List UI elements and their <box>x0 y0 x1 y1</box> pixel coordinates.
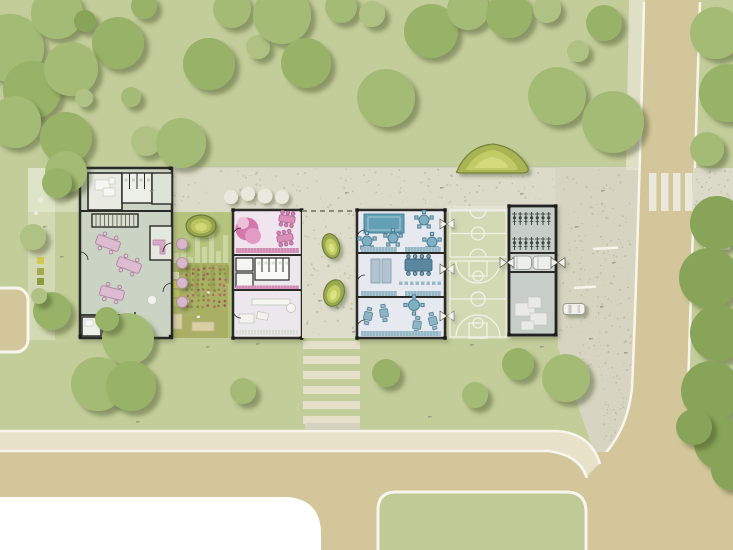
circle-shape <box>245 228 261 244</box>
rect-shape <box>355 208 359 212</box>
rect-shape <box>37 257 44 264</box>
rect-shape <box>305 423 360 430</box>
circle-shape <box>39 198 44 203</box>
tree <box>359 1 385 27</box>
rect-shape <box>507 204 511 208</box>
site-plan-canvas <box>0 0 733 550</box>
parked-van <box>512 256 532 270</box>
rect-shape <box>216 251 221 265</box>
tree <box>586 5 622 41</box>
rect-shape <box>85 320 93 326</box>
tree <box>690 132 724 166</box>
tree <box>183 38 235 90</box>
tree <box>462 382 488 408</box>
rect-shape <box>169 335 173 339</box>
staircase <box>92 214 138 227</box>
rect-shape <box>236 273 253 287</box>
ellipse-shape <box>195 223 207 231</box>
tree <box>281 38 331 88</box>
street-south <box>0 431 645 550</box>
rect-shape <box>79 335 83 339</box>
parked-car <box>563 304 585 315</box>
circle-shape <box>287 304 296 313</box>
plaza-tree <box>241 187 255 201</box>
building-blue <box>355 208 454 339</box>
traffic-island <box>378 492 586 550</box>
rect-shape <box>109 178 115 184</box>
pink-table <box>278 210 296 228</box>
circle-shape <box>258 262 261 265</box>
circle-shape <box>177 258 188 269</box>
tree <box>502 348 534 380</box>
parked-van <box>533 256 553 270</box>
circle-shape <box>139 178 142 181</box>
tree <box>20 224 46 250</box>
tree <box>567 40 589 62</box>
rect-shape <box>223 235 228 265</box>
circle-shape <box>124 178 127 181</box>
circle-shape <box>279 262 282 265</box>
rect-shape <box>443 336 447 340</box>
rect-shape <box>231 336 235 340</box>
site-plan-stage <box>0 0 733 550</box>
circle-shape <box>177 239 188 250</box>
rect-shape <box>103 188 115 196</box>
tree <box>95 307 119 331</box>
tree <box>676 409 712 445</box>
circle-shape <box>286 262 289 265</box>
tree <box>74 10 96 32</box>
ticks-shape <box>237 248 297 253</box>
rect-shape <box>202 265 207 279</box>
building-east <box>500 204 565 336</box>
rect-shape <box>578 305 581 313</box>
rect-shape <box>37 278 44 285</box>
tree <box>92 17 144 69</box>
tree <box>156 118 206 168</box>
rect-shape <box>231 208 235 212</box>
rect-shape <box>37 268 44 275</box>
circle-shape <box>237 217 249 229</box>
circle-shape <box>147 178 150 181</box>
circle-shape <box>272 262 275 265</box>
tree <box>582 91 644 153</box>
rect-shape <box>405 291 441 296</box>
tree <box>106 361 156 411</box>
rect-shape <box>405 247 441 252</box>
circle-shape <box>132 178 135 181</box>
circle-shape <box>148 296 157 305</box>
rect-shape <box>236 248 299 253</box>
plaza-tree <box>224 190 238 204</box>
rect-shape <box>554 333 558 337</box>
rect-shape <box>355 336 359 340</box>
play-mound <box>186 215 216 237</box>
rect-shape <box>563 304 585 315</box>
rect-shape <box>528 297 541 308</box>
tree <box>31 288 47 304</box>
rect-shape <box>554 204 558 208</box>
plaza-tree <box>275 190 289 204</box>
building-pink <box>231 208 303 339</box>
tree <box>121 87 141 107</box>
south-west-block <box>0 497 321 550</box>
tree <box>372 359 400 387</box>
rect-shape <box>252 299 290 305</box>
rect-shape <box>382 259 391 283</box>
tree <box>42 168 72 198</box>
rect-shape <box>239 314 254 323</box>
ticks-shape <box>237 330 297 335</box>
tree <box>230 378 256 404</box>
circle-shape <box>34 211 38 215</box>
rect-shape <box>371 259 380 283</box>
rect-shape <box>202 247 207 265</box>
rect-shape <box>521 321 534 330</box>
tree <box>542 354 590 402</box>
rect-shape <box>361 247 397 252</box>
sports-courts <box>447 206 511 339</box>
tree <box>75 89 93 107</box>
circle-shape <box>177 278 188 289</box>
rect-shape <box>569 305 572 314</box>
tree <box>357 69 415 127</box>
toilets-pink <box>255 258 289 280</box>
rect-shape <box>507 333 511 337</box>
driveway-stub <box>0 288 28 352</box>
rect-shape <box>256 312 268 321</box>
rect-shape <box>152 173 172 204</box>
rect-shape <box>236 258 253 271</box>
rect-shape <box>361 291 397 296</box>
tree <box>528 67 586 125</box>
circle-shape <box>265 262 268 265</box>
building-west <box>79 167 173 339</box>
circle-shape <box>177 297 188 308</box>
planter-box <box>192 322 214 331</box>
rect-shape <box>302 210 357 338</box>
rect-shape <box>447 206 511 339</box>
rect-shape <box>443 208 447 212</box>
tree <box>44 42 98 96</box>
courtyard <box>302 210 357 338</box>
rect-shape <box>169 167 173 171</box>
plaza-tree <box>258 189 273 204</box>
